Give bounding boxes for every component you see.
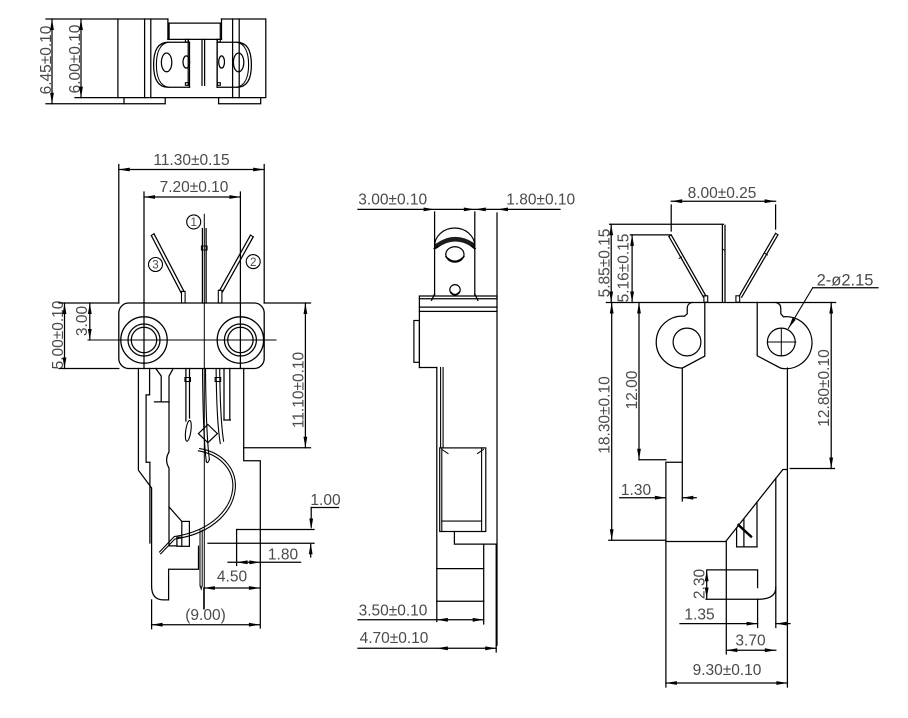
svg-text:7.20±0.10: 7.20±0.10 (160, 179, 229, 196)
svg-text:2.30: 2.30 (692, 569, 709, 600)
svg-text:4.70±0.10: 4.70±0.10 (360, 630, 429, 647)
svg-text:3.70: 3.70 (735, 633, 766, 650)
svg-text:(9.00): (9.00) (185, 607, 226, 624)
svg-text:1: 1 (190, 217, 196, 229)
svg-text:3.00±0.10: 3.00±0.10 (358, 192, 427, 209)
svg-text:1.00: 1.00 (310, 492, 341, 509)
svg-text:3.50±0.10: 3.50±0.10 (359, 603, 428, 620)
svg-text:12.80±0.10: 12.80±0.10 (816, 349, 833, 427)
svg-text:11.30±0.15: 11.30±0.15 (153, 152, 229, 169)
svg-text:18.30±0.10: 18.30±0.10 (597, 376, 614, 454)
svg-text:1.30: 1.30 (621, 482, 652, 499)
svg-text:8.00±0.25: 8.00±0.25 (688, 185, 757, 202)
svg-text:2-ø2.15: 2-ø2.15 (817, 272, 874, 290)
svg-text:3: 3 (152, 260, 158, 272)
svg-text:1.35: 1.35 (684, 607, 714, 624)
svg-text:1.80±0.10: 1.80±0.10 (506, 192, 575, 209)
svg-text:9.30±0.10: 9.30±0.10 (693, 662, 762, 679)
svg-text:2: 2 (250, 257, 256, 269)
svg-text:5.16±0.15: 5.16±0.15 (616, 234, 633, 303)
svg-text:1.80: 1.80 (268, 547, 299, 564)
svg-text:4.50: 4.50 (217, 569, 248, 586)
